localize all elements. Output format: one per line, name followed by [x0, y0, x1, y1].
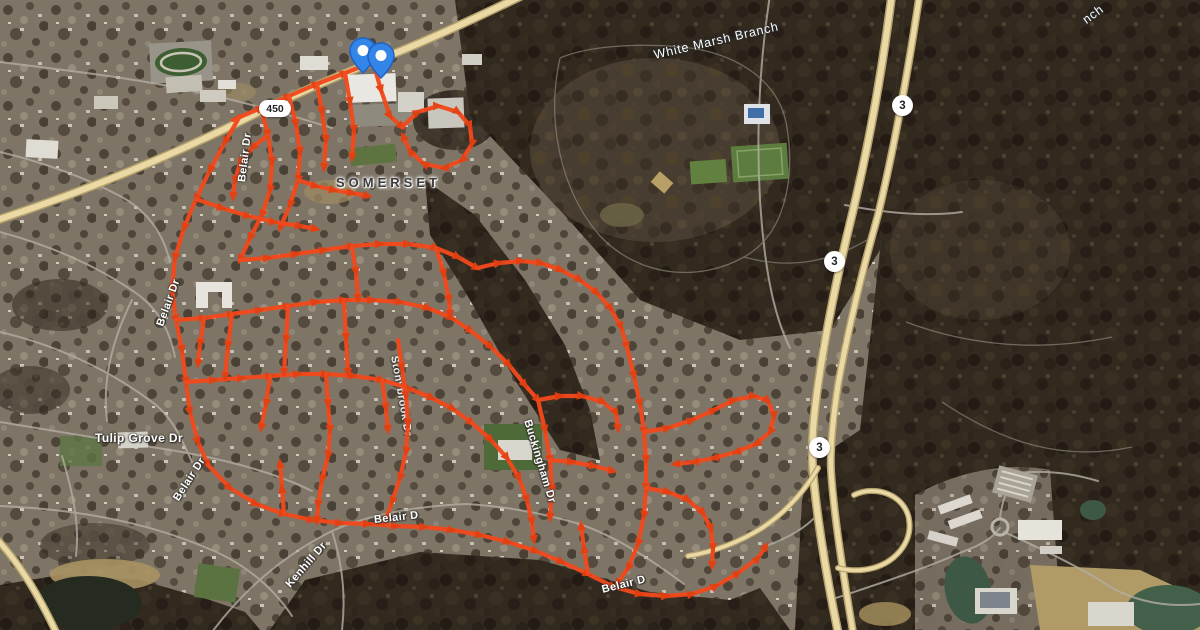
pond-3 — [1080, 500, 1106, 520]
terrain-layer — [0, 0, 1200, 630]
satellite-map-canvas[interactable]: Stonybrook Dr — [0, 0, 1200, 630]
